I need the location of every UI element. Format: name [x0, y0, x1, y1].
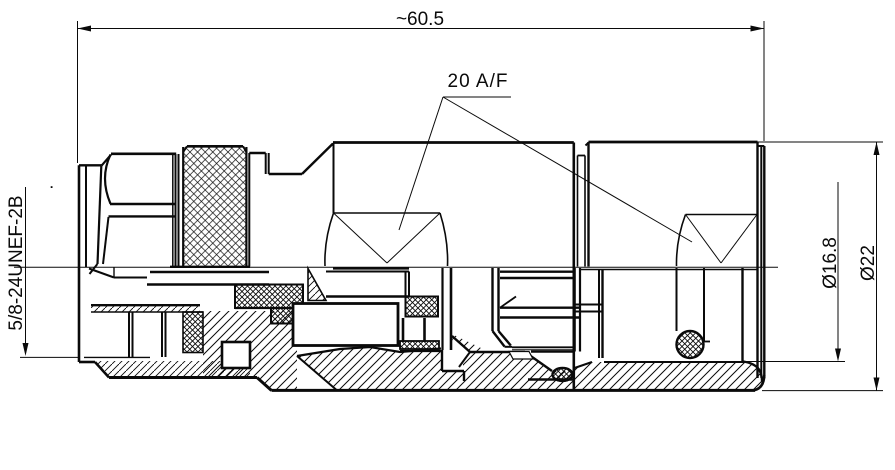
svg-text:~60.5: ~60.5: [396, 9, 444, 30]
svg-text:20 A/F: 20 A/F: [448, 71, 509, 92]
svg-text:Ø22: Ø22: [858, 245, 879, 281]
svg-text:Ø16.8: Ø16.8: [820, 237, 841, 289]
svg-text:5/8-24UNEF-2B: 5/8-24UNEF-2B: [6, 195, 27, 330]
